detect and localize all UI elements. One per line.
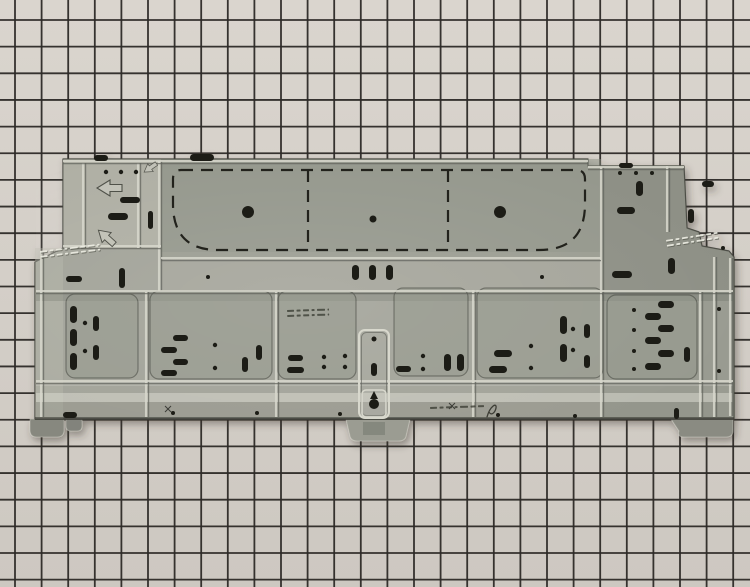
punched-hole <box>494 206 506 218</box>
punched-hole <box>171 411 175 415</box>
stamp-glyph <box>470 405 475 407</box>
punched-hole <box>717 307 721 311</box>
slot-cutout <box>636 181 643 196</box>
stamp-glyph <box>439 407 443 409</box>
punched-hole <box>634 171 638 175</box>
punched-hole <box>119 170 123 174</box>
slot-cutout <box>658 350 674 357</box>
slot-cutout <box>287 367 304 373</box>
punched-hole <box>721 246 725 250</box>
panel-photo-canvas <box>0 0 750 587</box>
slot-cutout <box>369 265 376 280</box>
punched-hole <box>255 411 259 415</box>
slot-cutout <box>702 181 714 187</box>
slot-cutout <box>161 347 177 353</box>
stamp-glyph <box>317 309 325 311</box>
stamp-glyph <box>97 244 100 246</box>
slot-cutout <box>119 268 125 288</box>
punched-hole <box>421 367 425 371</box>
product-photo <box>0 0 750 587</box>
slot-cutout <box>120 197 140 203</box>
slot-cutout <box>108 213 128 220</box>
slot-cutout <box>668 258 675 274</box>
slot-cutout <box>190 154 214 161</box>
punched-hole <box>343 365 347 369</box>
slot-cutout <box>63 412 77 418</box>
slot-cutout <box>560 316 567 334</box>
slot-cutout <box>66 276 82 282</box>
stamp-glyph <box>454 406 457 408</box>
slot-cutout <box>396 366 411 372</box>
punched-hole <box>571 348 575 352</box>
slot-cutout <box>560 344 567 362</box>
punched-hole <box>632 328 636 332</box>
slot-cutout <box>457 354 464 371</box>
punched-hole <box>370 216 377 223</box>
slot-cutout <box>161 370 177 376</box>
slot-cutout <box>494 350 512 357</box>
punched-hole <box>496 413 500 417</box>
punched-hole <box>717 369 721 373</box>
slot-cutout <box>173 359 188 365</box>
slot-cutout <box>658 325 674 332</box>
punched-hole <box>338 412 342 416</box>
screw-slot <box>371 363 377 376</box>
punched-hole <box>242 206 254 218</box>
slot-cutout <box>674 408 679 419</box>
punched-hole <box>421 354 425 358</box>
stamp-glyph <box>303 314 309 316</box>
punched-hole <box>529 366 533 370</box>
punched-hole <box>83 321 87 325</box>
slot-cutout <box>70 329 77 346</box>
slot-cutout <box>645 337 661 344</box>
slot-cutout <box>645 363 661 370</box>
slot-cutout <box>173 335 188 341</box>
punched-hole <box>540 275 544 279</box>
punched-hole <box>104 170 108 174</box>
keyhole-slot <box>369 399 379 409</box>
punched-hole <box>573 414 577 418</box>
slot-cutout <box>688 209 694 223</box>
stamp-glyph <box>328 314 330 316</box>
stamp-glyph <box>98 249 101 251</box>
panel-foot <box>671 419 733 437</box>
channel-hole <box>372 337 377 342</box>
panel-foot <box>66 419 82 431</box>
punched-hole <box>529 344 533 348</box>
panel-foot <box>30 419 64 437</box>
slot-cutout <box>386 265 393 280</box>
punched-hole <box>322 355 326 359</box>
punched-hole <box>571 327 575 331</box>
punched-hole <box>343 354 347 358</box>
stamp-glyph <box>460 406 468 408</box>
slot-cutout <box>70 353 77 370</box>
punched-hole <box>206 275 210 279</box>
slot-cutout <box>444 354 451 371</box>
slot-cutout <box>94 155 108 161</box>
stamp-glyph <box>430 407 437 409</box>
punched-hole <box>134 170 138 174</box>
slot-cutout <box>645 313 661 320</box>
slot-cutout <box>93 316 99 331</box>
metal-panel <box>30 154 734 441</box>
slot-cutout <box>148 211 153 229</box>
slot-cutout <box>612 271 632 278</box>
punched-hole <box>632 367 636 371</box>
slot-cutout <box>288 355 303 361</box>
slot-cutout <box>617 207 635 214</box>
punched-hole <box>83 349 87 353</box>
slot-cutout <box>619 163 633 168</box>
slot-cutout <box>352 265 359 280</box>
slot-cutout <box>684 347 690 362</box>
slot-cutout <box>584 324 590 338</box>
stamp-glyph <box>287 310 294 312</box>
recessed-section <box>150 291 272 379</box>
stamp-glyph <box>327 309 329 311</box>
stamp-glyph <box>296 310 300 312</box>
punched-hole <box>213 366 217 370</box>
punched-hole <box>632 349 636 353</box>
slot-cutout <box>658 301 674 308</box>
stamp-glyph <box>317 314 325 316</box>
stamp-glyph <box>312 314 315 316</box>
stamp-glyph <box>311 309 314 311</box>
slot-cutout <box>584 355 590 368</box>
stamp-glyph <box>65 253 68 255</box>
slot-cutout <box>70 306 77 323</box>
slot-cutout <box>489 366 507 373</box>
punched-hole <box>213 343 217 347</box>
punched-hole <box>632 308 636 312</box>
stamp-glyph <box>64 248 67 250</box>
stamp-glyph <box>287 315 294 317</box>
punched-hole <box>322 365 326 369</box>
lighting-overlay <box>363 422 385 435</box>
stamp-glyph <box>303 309 309 311</box>
stamp-glyph <box>478 405 484 407</box>
punched-hole <box>618 171 622 175</box>
slot-cutout <box>256 345 262 360</box>
slot-cutout <box>242 357 248 372</box>
recessed-section <box>394 288 468 376</box>
slot-cutout <box>93 345 99 360</box>
stamp-glyph <box>297 315 301 317</box>
punched-hole <box>650 171 654 175</box>
